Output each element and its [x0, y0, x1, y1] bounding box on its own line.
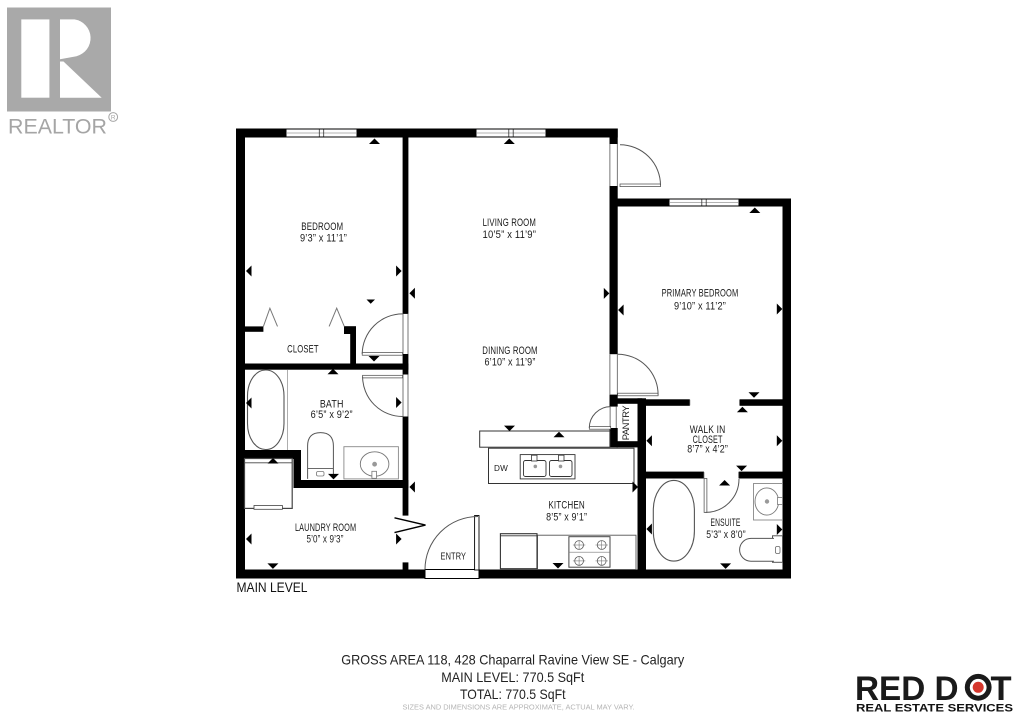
svg-text:ENSUITE: ENSUITE — [711, 517, 741, 529]
svg-text:DW: DW — [494, 463, 509, 473]
svg-text:MAIN LEVEL: 770.5 SqFt: MAIN LEVEL: 770.5 SqFt — [441, 669, 584, 685]
svg-text:8’7” x 4’2”: 8’7” x 4’2” — [687, 443, 728, 455]
svg-text:6’5” x 9’2”: 6’5” x 9’2” — [311, 409, 353, 421]
svg-text:REALTOR: REALTOR — [8, 116, 107, 139]
svg-text:REAL ESTATE SERVICES: REAL ESTATE SERVICES — [856, 702, 1014, 714]
svg-text:DINING ROOM: DINING ROOM — [482, 345, 537, 357]
svg-text:6’10” x 11’9”: 6’10” x 11’9” — [485, 357, 536, 369]
svg-text:KITCHEN: KITCHEN — [548, 500, 585, 512]
svg-text:SIZES AND DIMENSIONS ARE APPRO: SIZES AND DIMENSIONS ARE APPROXIMATE, AC… — [403, 703, 635, 712]
svg-text:9’3” x 11’1”: 9’3” x 11’1” — [300, 233, 347, 245]
svg-text:10’5” x 11’9”: 10’5” x 11’9” — [483, 229, 537, 241]
svg-text:PRIMARY BEDROOM: PRIMARY BEDROOM — [662, 288, 739, 300]
svg-text:LIVING ROOM: LIVING ROOM — [483, 217, 536, 229]
svg-text:MAIN LEVEL: MAIN LEVEL — [237, 579, 308, 595]
svg-text:GROSS AREA 118, 428 Chaparral: GROSS AREA 118, 428 Chaparral Ravine Vie… — [341, 652, 684, 668]
svg-text:ENTRY: ENTRY — [441, 552, 467, 563]
svg-text:LAUNDRY ROOM: LAUNDRY ROOM — [295, 522, 356, 534]
svg-text:9’10” x 11’2”: 9’10” x 11’2” — [674, 301, 726, 313]
svg-text:TOTAL: 770.5 SqFt: TOTAL: 770.5 SqFt — [460, 686, 566, 702]
svg-text:CLOSET: CLOSET — [287, 343, 319, 355]
svg-text:5’3” x 8’0”: 5’3” x 8’0” — [706, 529, 746, 541]
svg-text:8’5” x 9’1”: 8’5” x 9’1” — [546, 512, 587, 524]
svg-text:5’0” x 9’3”: 5’0” x 9’3” — [306, 534, 343, 546]
svg-text:R: R — [111, 115, 116, 122]
svg-text:BEDROOM: BEDROOM — [301, 221, 343, 233]
svg-text:PANTRY: PANTRY — [620, 405, 631, 441]
